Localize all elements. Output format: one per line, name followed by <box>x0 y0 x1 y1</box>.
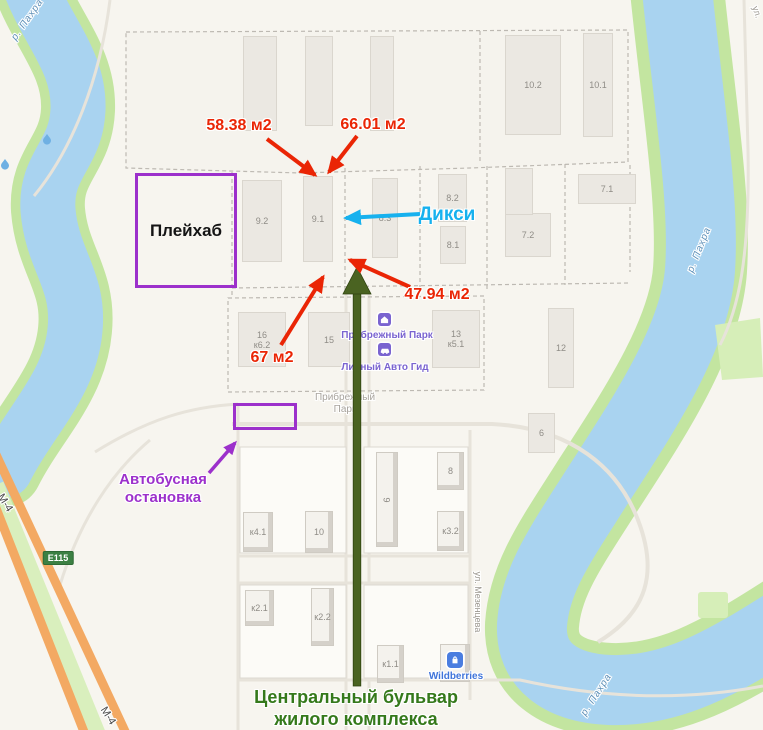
annotation-arrows <box>0 0 763 730</box>
annotated-map[interactable]: 10.210.18.28.17.17.29.29.18.316 к6.21513… <box>0 0 763 730</box>
arrow-67 <box>281 277 323 345</box>
bus-stop-arrow <box>209 443 235 473</box>
area-label-67: 67 м2 <box>251 349 294 367</box>
playhub-label: Плейхаб <box>150 221 222 241</box>
playhub-outline-box: Плейхаб <box>135 173 237 288</box>
diksi-label: Дикси <box>419 204 476 226</box>
area-label-58-38: 58.38 м2 <box>206 117 271 135</box>
bus-stop-outline-box <box>233 403 297 430</box>
bus-stop-label: Автобусная остановка <box>119 471 207 507</box>
arrow-66-01 <box>329 136 357 172</box>
boulevard-caption: Центральный бульвар жилого комплекса <box>254 686 458 730</box>
diksi-arrow <box>346 214 420 218</box>
arrow-58-38 <box>267 139 315 175</box>
boulevard-arrow <box>343 267 371 686</box>
area-label-66-01: 66.01 м2 <box>340 116 405 134</box>
red-arrows <box>267 136 410 345</box>
area-label-47-94: 47.94 м2 <box>404 286 469 304</box>
